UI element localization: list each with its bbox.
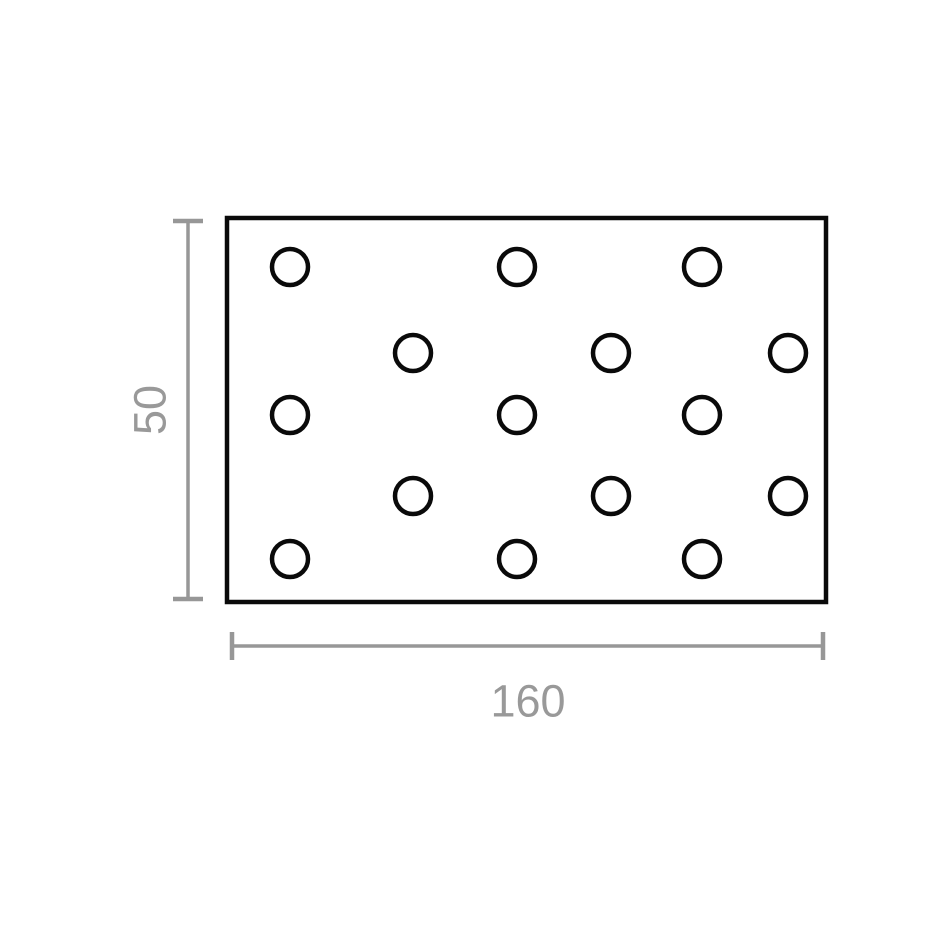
hole	[684, 541, 720, 577]
hole	[499, 249, 535, 285]
hole	[593, 335, 629, 371]
hole	[499, 541, 535, 577]
hole	[499, 397, 535, 433]
hole	[395, 335, 431, 371]
hole	[770, 335, 806, 371]
width-dimension-label: 160	[490, 676, 565, 727]
hole	[272, 249, 308, 285]
hole	[272, 397, 308, 433]
height-dimension-label: 50	[125, 385, 176, 435]
drawing-canvas: 50 160	[0, 0, 950, 950]
hole	[684, 249, 720, 285]
technical-drawing-svg: 50 160	[0, 0, 950, 950]
hole	[395, 478, 431, 514]
hole	[684, 397, 720, 433]
hole	[770, 478, 806, 514]
drawing-root	[173, 218, 826, 660]
hole	[593, 478, 629, 514]
hole	[272, 541, 308, 577]
